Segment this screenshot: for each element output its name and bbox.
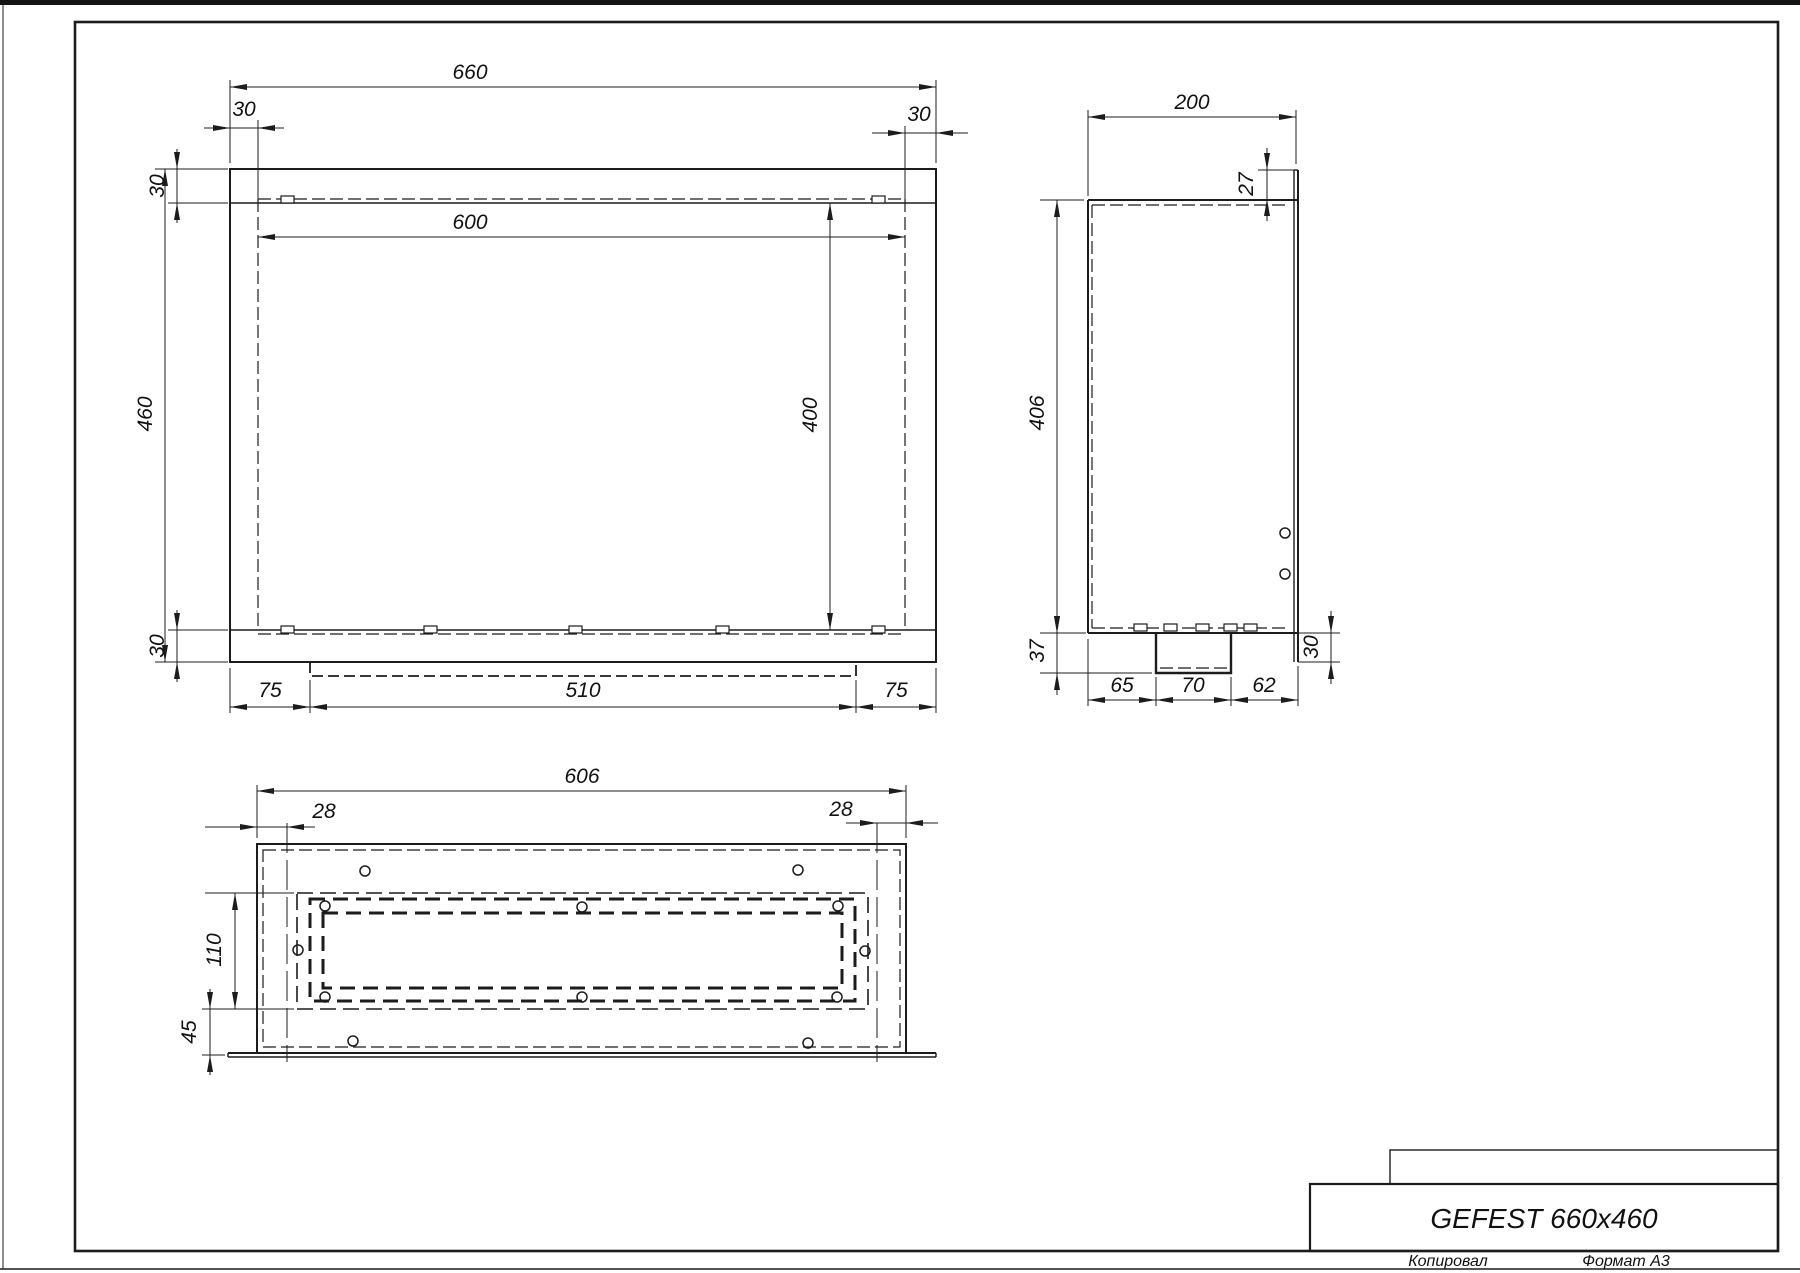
- front-view-dimensions: 660 30 30 600 30 460 400 30 75 510 75: [134, 61, 968, 713]
- front-view: 660 30 30 600 30 460 400 30 75 510 75: [134, 61, 968, 713]
- side-hole-lower: [1280, 569, 1290, 579]
- dim-front-bottom-right: 75: [884, 679, 908, 702]
- dim-front-inner-height: 400: [799, 397, 822, 432]
- drawing-sheet: 660 30 30 600 30 460 400 30 75 510 75: [0, 0, 1800, 1273]
- side-hole-upper: [1280, 528, 1290, 538]
- dim-front-right-offset: 30: [907, 103, 931, 126]
- dim-bottom-left-offset: 28: [311, 800, 336, 823]
- dim-front-bottom-left: 75: [258, 679, 282, 702]
- side-view-dimensions: 200 27 406 37 65 70 62 30: [1026, 91, 1340, 706]
- side-view: 200 27 406 37 65 70 62 30: [1026, 91, 1340, 706]
- drawing-title: GEFEST 660x460: [1430, 1203, 1658, 1234]
- title-block: GEFEST 660x460 Копировал Формат A3: [1310, 1150, 1778, 1270]
- dim-front-total-width: 660: [452, 61, 487, 84]
- bottom-view-outline: [228, 823, 936, 1062]
- dim-bottom-right-offset: 28: [828, 798, 853, 821]
- dim-side-bottom-center: 70: [1181, 674, 1205, 697]
- dim-side-top-lip: 27: [1235, 171, 1258, 197]
- dim-front-bottom-offset: 30: [146, 634, 169, 658]
- dim-bottom-total-width: 606: [564, 765, 599, 788]
- dim-front-top-offset: 30: [146, 174, 169, 198]
- bottom-tray-hidden-edge: [310, 662, 856, 676]
- dim-front-left-offset: 30: [232, 98, 256, 121]
- side-view-outline: [1088, 170, 1298, 673]
- dim-side-bottom-right: 62: [1252, 674, 1276, 697]
- dim-front-total-height: 460: [134, 396, 157, 431]
- dim-side-total-depth: 200: [1173, 91, 1209, 114]
- dim-side-inner-height: 406: [1026, 395, 1049, 430]
- copied-label: Копировал: [1408, 1253, 1488, 1270]
- bottom-view: 606 28 28 110 45: [178, 765, 938, 1075]
- dim-front-inner-width: 600: [452, 211, 487, 234]
- dim-side-bottom-left: 65: [1110, 674, 1134, 697]
- dim-side-bottom-step: 37: [1026, 638, 1049, 663]
- burner-frame-inner: [323, 913, 842, 988]
- dim-front-bottom-opening: 510: [565, 679, 600, 702]
- title-block-upper-cell: [1390, 1150, 1778, 1184]
- dim-bottom-slot-height: 110: [203, 933, 226, 967]
- format-label: Формат A3: [1582, 1253, 1670, 1270]
- dim-bottom-flange-offset: 45: [178, 1020, 201, 1044]
- bottom-view-dimensions: 606 28 28 110 45: [178, 765, 938, 1075]
- drawing-canvas: 660 30 30 600 30 460 400 30 75 510 75: [0, 0, 1800, 1273]
- drawing-frame: [75, 22, 1778, 1251]
- dim-side-right-drop: 30: [1300, 635, 1323, 659]
- sheet-top-edge: [0, 0, 1800, 5]
- side-bottom-tray: [1156, 633, 1231, 673]
